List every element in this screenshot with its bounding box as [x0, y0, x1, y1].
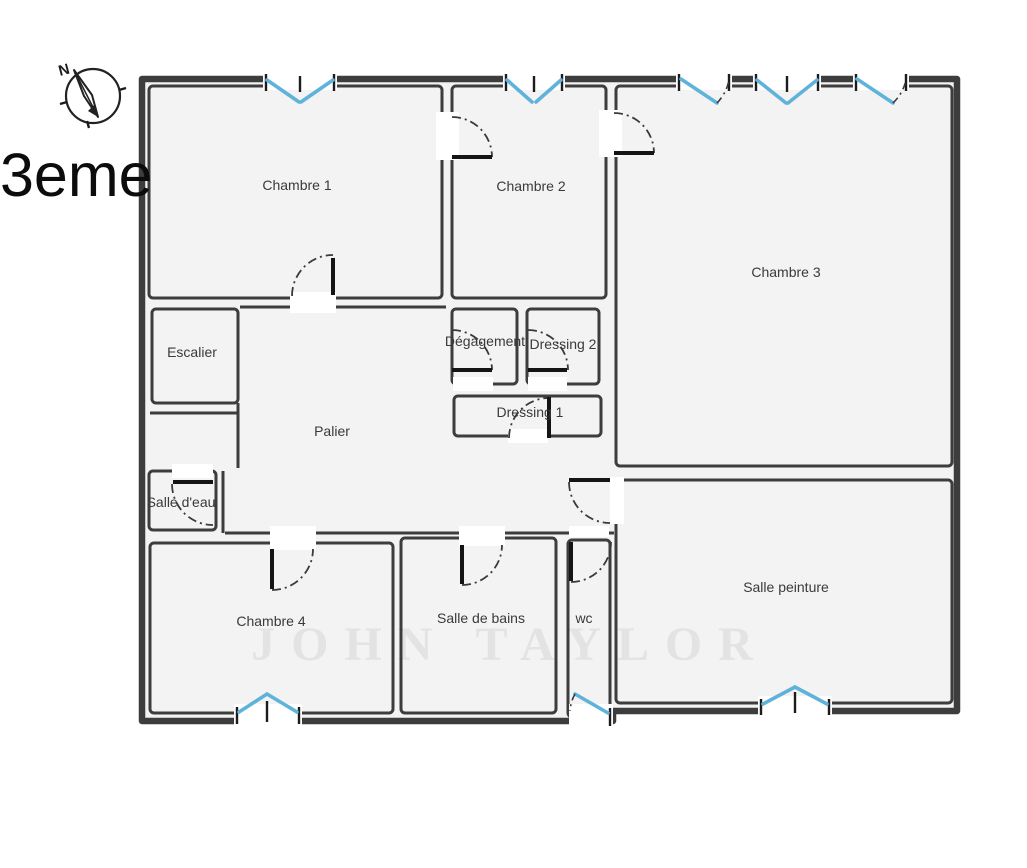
room-label-salle-de-bains: Salle de bains	[437, 610, 525, 626]
room-label-chambre-2: Chambre 2	[496, 178, 565, 194]
room-label-salle-peinture: Salle peinture	[743, 579, 829, 595]
room-label-dressing-2: Dressing 2	[530, 336, 597, 352]
room-label-chambre-1: Chambre 1	[262, 177, 331, 193]
compass-north-icon: N	[57, 61, 126, 128]
floor-plan-page: JOHN TAYLOR Chambre 1 Chambre 2 Chambre …	[0, 0, 1027, 868]
compass-north-label: N	[57, 61, 72, 80]
room-label-chambre-4: Chambre 4	[236, 613, 305, 629]
room-label-wc: wc	[574, 610, 592, 626]
room-label-dressing-1: Dressing 1	[497, 404, 564, 420]
floor-plan-canvas: JOHN TAYLOR Chambre 1 Chambre 2 Chambre …	[0, 0, 1027, 868]
room-label-salle-d-eau: Salle d'eau	[147, 494, 216, 510]
room-label-degagement: Dégagement	[445, 333, 525, 349]
room-label-chambre-3: Chambre 3	[751, 264, 820, 280]
room-label-palier: Palier	[314, 423, 350, 439]
floor-title: 3eme	[0, 141, 153, 209]
room-label-escalier: Escalier	[167, 344, 217, 360]
